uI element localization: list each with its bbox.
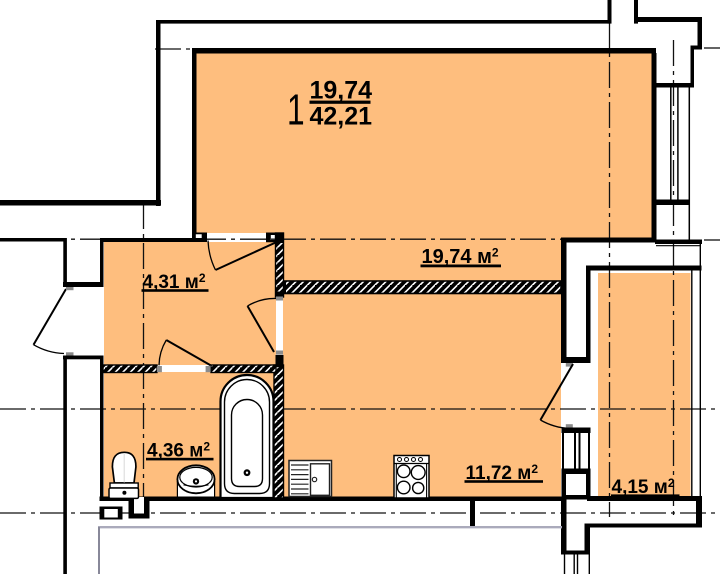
svg-text:19,74: 19,74 xyxy=(310,76,373,104)
svg-text:42,21: 42,21 xyxy=(310,103,373,131)
svg-text:1: 1 xyxy=(287,85,305,134)
